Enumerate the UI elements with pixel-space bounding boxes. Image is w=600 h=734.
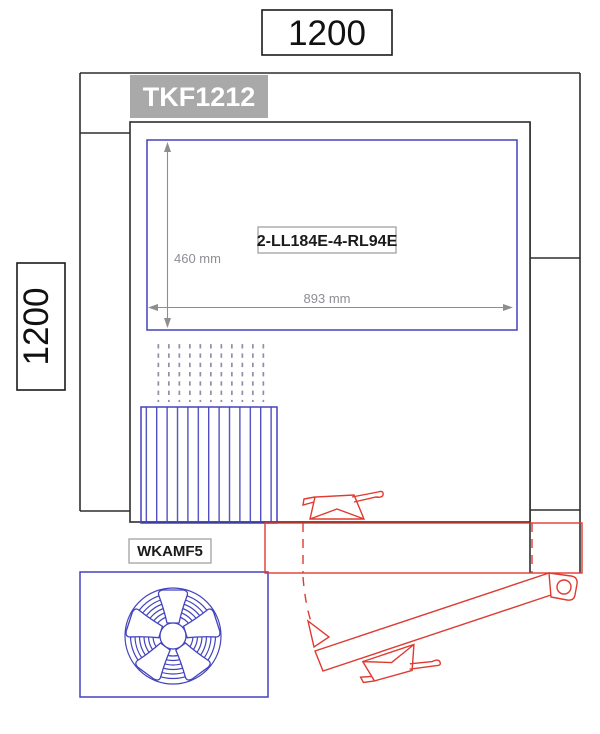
fan-hub — [160, 623, 186, 649]
cad-drawing-canvas: 1200 1200 TKF1212 460 mm 893 mm 2-LL184E… — [0, 0, 600, 734]
component-label: 2-LL184E-4-RL94E — [257, 233, 398, 250]
filter-label-box: WKAMF5 — [129, 539, 211, 563]
damper-open-blade — [315, 573, 577, 690]
arrow-head-icon — [308, 621, 329, 647]
side-dimension-label: 1200 — [17, 288, 56, 366]
airflow-dot-grid — [150, 344, 271, 402]
pivot-hole-icon — [557, 580, 571, 594]
side-dimension-box: 1200 — [17, 263, 65, 390]
unit-label-box: TKF1212 — [130, 75, 268, 118]
top-dimension-box: 1200 — [262, 10, 392, 55]
unit-label: TKF1212 — [143, 82, 256, 112]
height-dimension-label: 460 mm — [174, 251, 221, 266]
top-dimension-label: 1200 — [288, 14, 366, 53]
component-label-box: 2-LL184E-4-RL94E — [257, 227, 398, 253]
heat-exchanger-hatch — [141, 407, 277, 523]
width-dimension-label: 893 mm — [304, 291, 351, 306]
filter-label: WKAMF5 — [137, 543, 203, 560]
ahu-plan-diagram: 1200 1200 TKF1212 460 mm 893 mm 2-LL184E… — [0, 0, 600, 734]
swing-direction-arrow — [303, 577, 329, 647]
fan-icon — [125, 588, 221, 684]
fan-section — [80, 572, 268, 697]
